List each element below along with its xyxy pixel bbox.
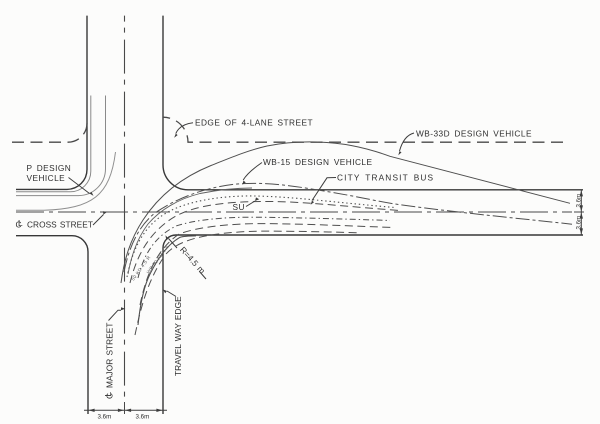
svg-text:WB-33D DESIGN VEHICLE: WB-33D DESIGN VEHICLE — [416, 129, 532, 139]
svg-text:VEHICLE: VEHICLE — [27, 173, 66, 183]
svg-text:L: L — [18, 218, 23, 228]
svg-text:3.6m: 3.6m — [98, 414, 112, 421]
svg-text:3.6m: 3.6m — [575, 194, 582, 208]
svg-text:CITY TRANSIT BUS: CITY TRANSIT BUS — [337, 173, 434, 183]
svg-text:MAJOR STREET: MAJOR STREET — [105, 323, 115, 388]
svg-text:P DESIGN: P DESIGN — [27, 163, 72, 173]
svg-text:L: L — [103, 391, 113, 396]
svg-text:3.6m: 3.6m — [136, 414, 150, 421]
svg-text:WB-15 DESIGN VEHICLE: WB-15 DESIGN VEHICLE — [263, 157, 372, 167]
svg-text:EDGE OF 4-LANE STREET: EDGE OF 4-LANE STREET — [195, 117, 313, 127]
svg-text:CROSS STREET: CROSS STREET — [27, 219, 93, 229]
svg-text:SU: SU — [233, 202, 245, 212]
svg-text:TRAVEL WAY EDGE: TRAVEL WAY EDGE — [173, 296, 183, 376]
svg-text:3.6m: 3.6m — [575, 216, 582, 230]
